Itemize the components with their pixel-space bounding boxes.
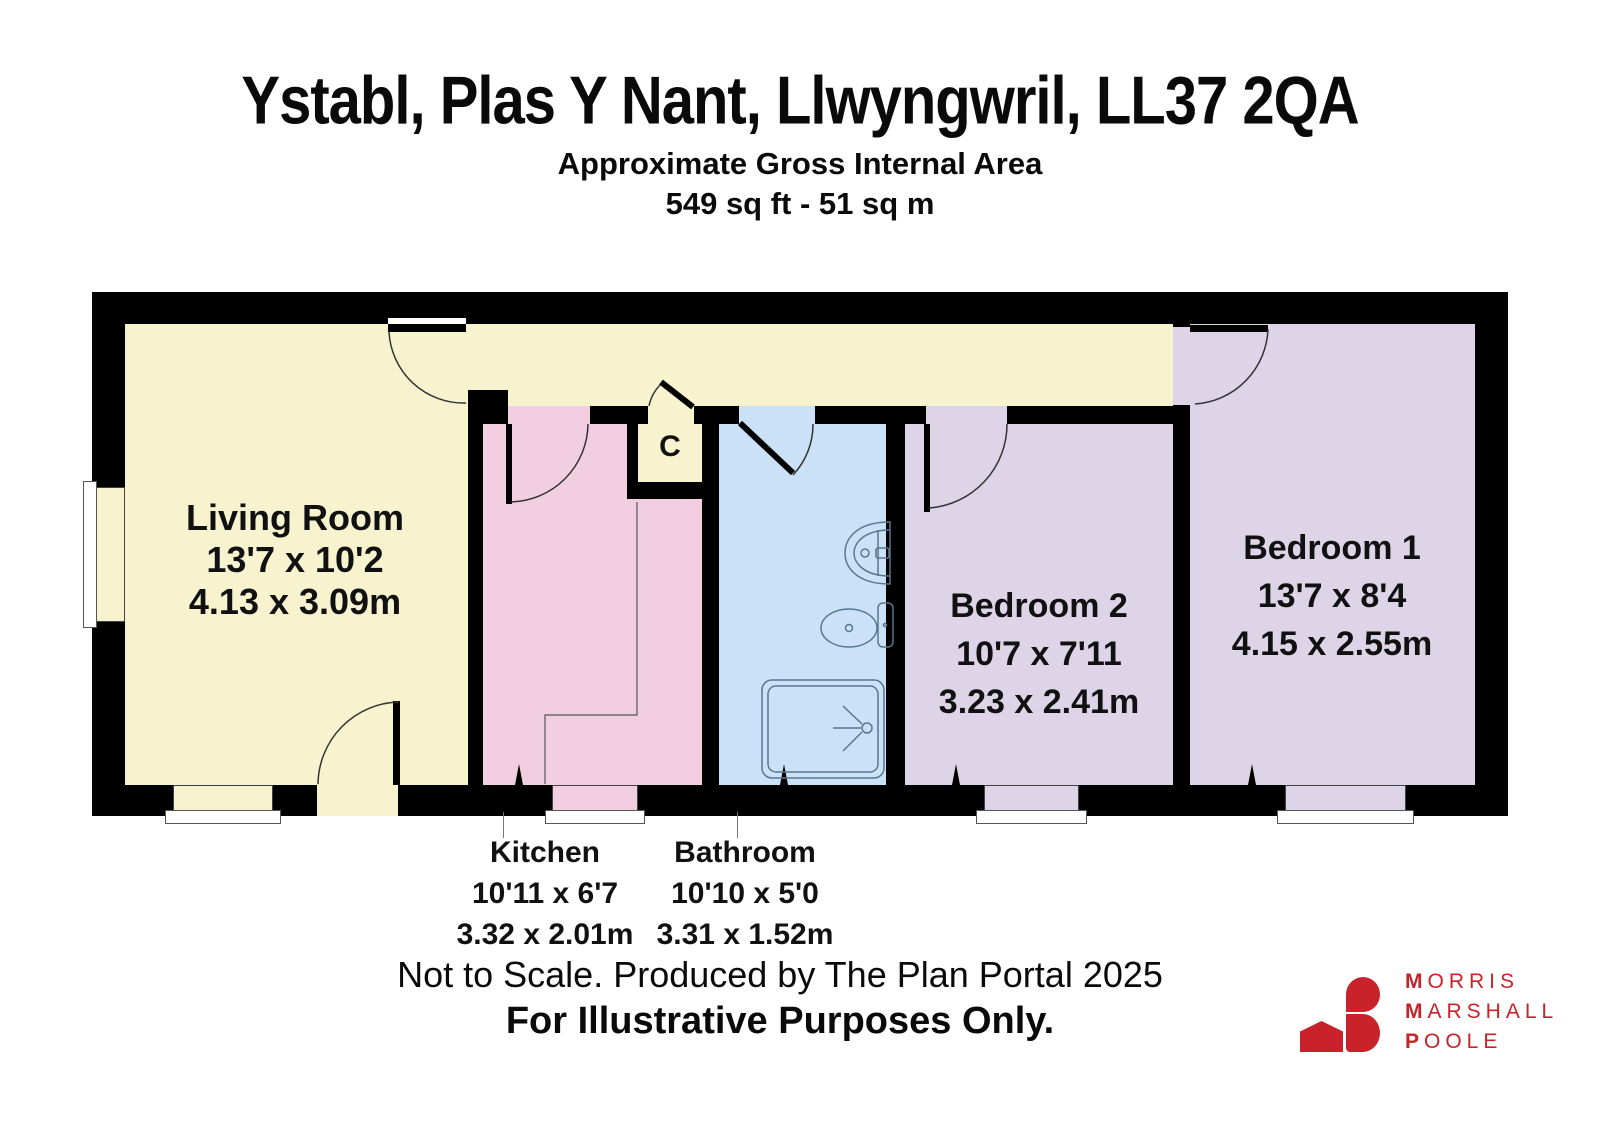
- room-imperial: 13'7 x 8'4: [1182, 572, 1482, 620]
- logo-initial: P: [1405, 1030, 1424, 1053]
- room-metric: 4.15 x 2.55m: [1182, 620, 1482, 668]
- window-sill: [976, 810, 1087, 824]
- room-name: Bathroom: [595, 832, 895, 873]
- gross-area: 549 sq ft - 51 sq m: [0, 186, 1600, 222]
- logo-mark-bottom: [1346, 1014, 1380, 1052]
- logo-text-morris: MORRIS: [1405, 970, 1519, 994]
- living-door-opening: [317, 785, 398, 816]
- floor-plan: Living Room 13'7 x 10'2 4.13 x 3.09m Bed…: [92, 292, 1508, 816]
- living-door-leaf: [393, 701, 400, 785]
- closet-letter: C: [650, 432, 690, 462]
- room-hallway: [468, 324, 1173, 406]
- bedroom1-door-opening: [1173, 327, 1190, 405]
- room-kitchen: [483, 424, 627, 499]
- logo-mark-top: [1346, 977, 1380, 1012]
- room-metric: 4.13 x 3.09m: [145, 581, 445, 623]
- wall-junction: [468, 390, 508, 424]
- room-name: Living Room: [145, 497, 445, 539]
- bathroom-label: Bathroom 10'10 x 5'0 3.31 x 1.52m: [595, 832, 895, 955]
- room-imperial: 13'7 x 10'2: [145, 539, 445, 581]
- room-bathroom: [719, 424, 886, 785]
- bedroom2-door-leaf: [924, 424, 930, 512]
- page-subtitle: Approximate Gross Internal Area: [0, 146, 1600, 182]
- logo-initial: M: [1405, 970, 1428, 993]
- kitchen-door-opening: [508, 406, 590, 424]
- room-metric: 3.23 x 2.41m: [889, 678, 1189, 726]
- bedroom1-door-leaf: [1190, 325, 1268, 332]
- room-kitchen: [483, 499, 702, 785]
- living-room-label: Living Room 13'7 x 10'2 4.13 x 3.09m: [145, 497, 445, 623]
- window-sill: [83, 481, 97, 628]
- bedroom2-label: Bedroom 2 10'7 x 7'11 3.23 x 2.41m: [889, 582, 1189, 726]
- logo-text-marshall: MARSHALL: [1405, 1000, 1558, 1024]
- logo-initial: M: [1405, 1000, 1428, 1023]
- logo-rest: ARSHALL: [1428, 1000, 1559, 1023]
- entrance-door-leaf: [388, 324, 466, 332]
- logo-text-poole: POOLE: [1405, 1030, 1502, 1054]
- window-sill: [545, 810, 645, 824]
- kitchen-door-leaf: [506, 424, 512, 504]
- room-name: Bedroom 1: [1182, 524, 1482, 572]
- room-imperial: 10'10 x 5'0: [595, 873, 895, 914]
- disclaimer-line: Not to Scale. Produced by The Plan Porta…: [0, 954, 1560, 996]
- window-sill: [165, 810, 281, 824]
- window-sill: [1277, 810, 1414, 824]
- page-title: Ystabl, Plas Y Nant, Llwyngwril, LL37 2Q…: [0, 62, 1600, 140]
- room-metric: 3.31 x 1.52m: [595, 914, 895, 955]
- room-name: Bedroom 2: [889, 582, 1189, 630]
- bedroom2-door-opening: [926, 406, 1007, 424]
- closet-label: C: [650, 432, 690, 462]
- bathroom-door-opening: [739, 406, 815, 424]
- logo-rest: ORRIS: [1428, 970, 1520, 993]
- logo-rest: OOLE: [1424, 1030, 1502, 1053]
- bedroom1-label: Bedroom 1 13'7 x 8'4 4.15 x 2.55m: [1182, 524, 1482, 668]
- room-imperial: 10'7 x 7'11: [889, 630, 1189, 678]
- closet-door-opening: [648, 406, 694, 424]
